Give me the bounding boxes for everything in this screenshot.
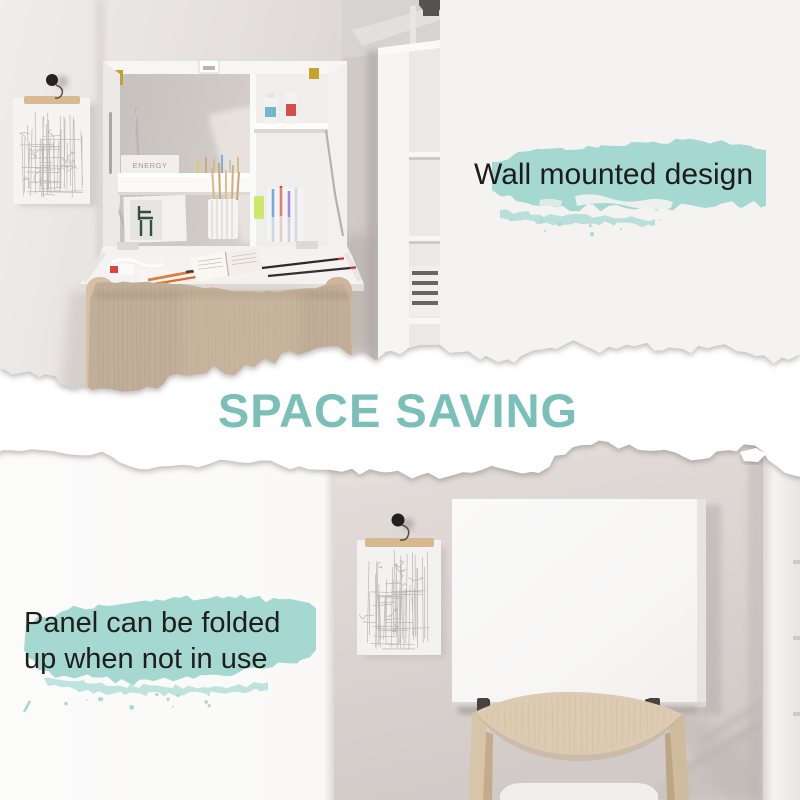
svg-text:up when not in use: up when not in use [24, 643, 267, 675]
svg-text:ENERGY: ENERGY [133, 161, 168, 170]
svg-text:Panel can be folded: Panel can be folded [24, 607, 280, 639]
svg-text:Wall mounted design: Wall mounted design [474, 158, 753, 191]
svg-text:SPACE SAVING: SPACE SAVING [218, 384, 578, 437]
